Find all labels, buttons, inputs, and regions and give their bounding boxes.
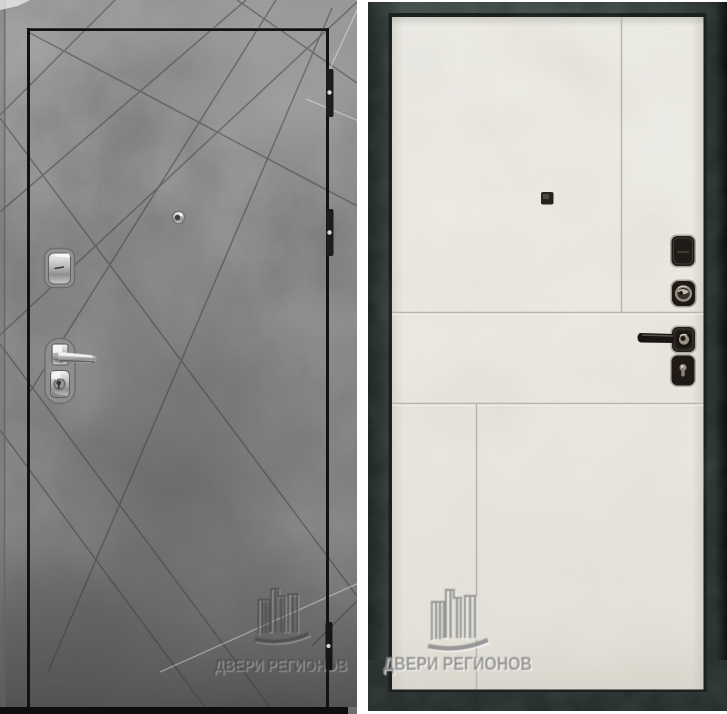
svg-text:ДВЕРИ РЕГИОНОВ: ДВЕРИ РЕГИОНОВ <box>383 654 532 674</box>
